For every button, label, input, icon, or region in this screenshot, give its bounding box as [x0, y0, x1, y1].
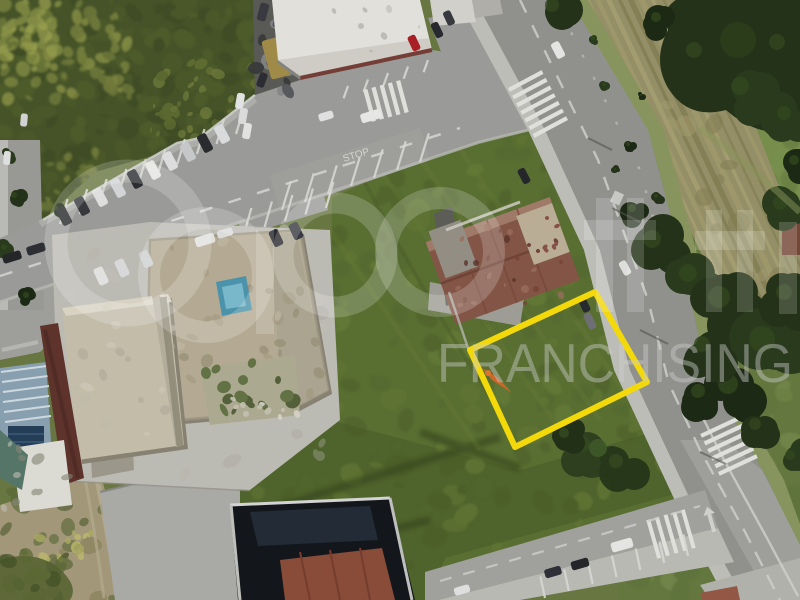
svg-text:FRANCHISING: FRANCHISING: [437, 332, 793, 394]
